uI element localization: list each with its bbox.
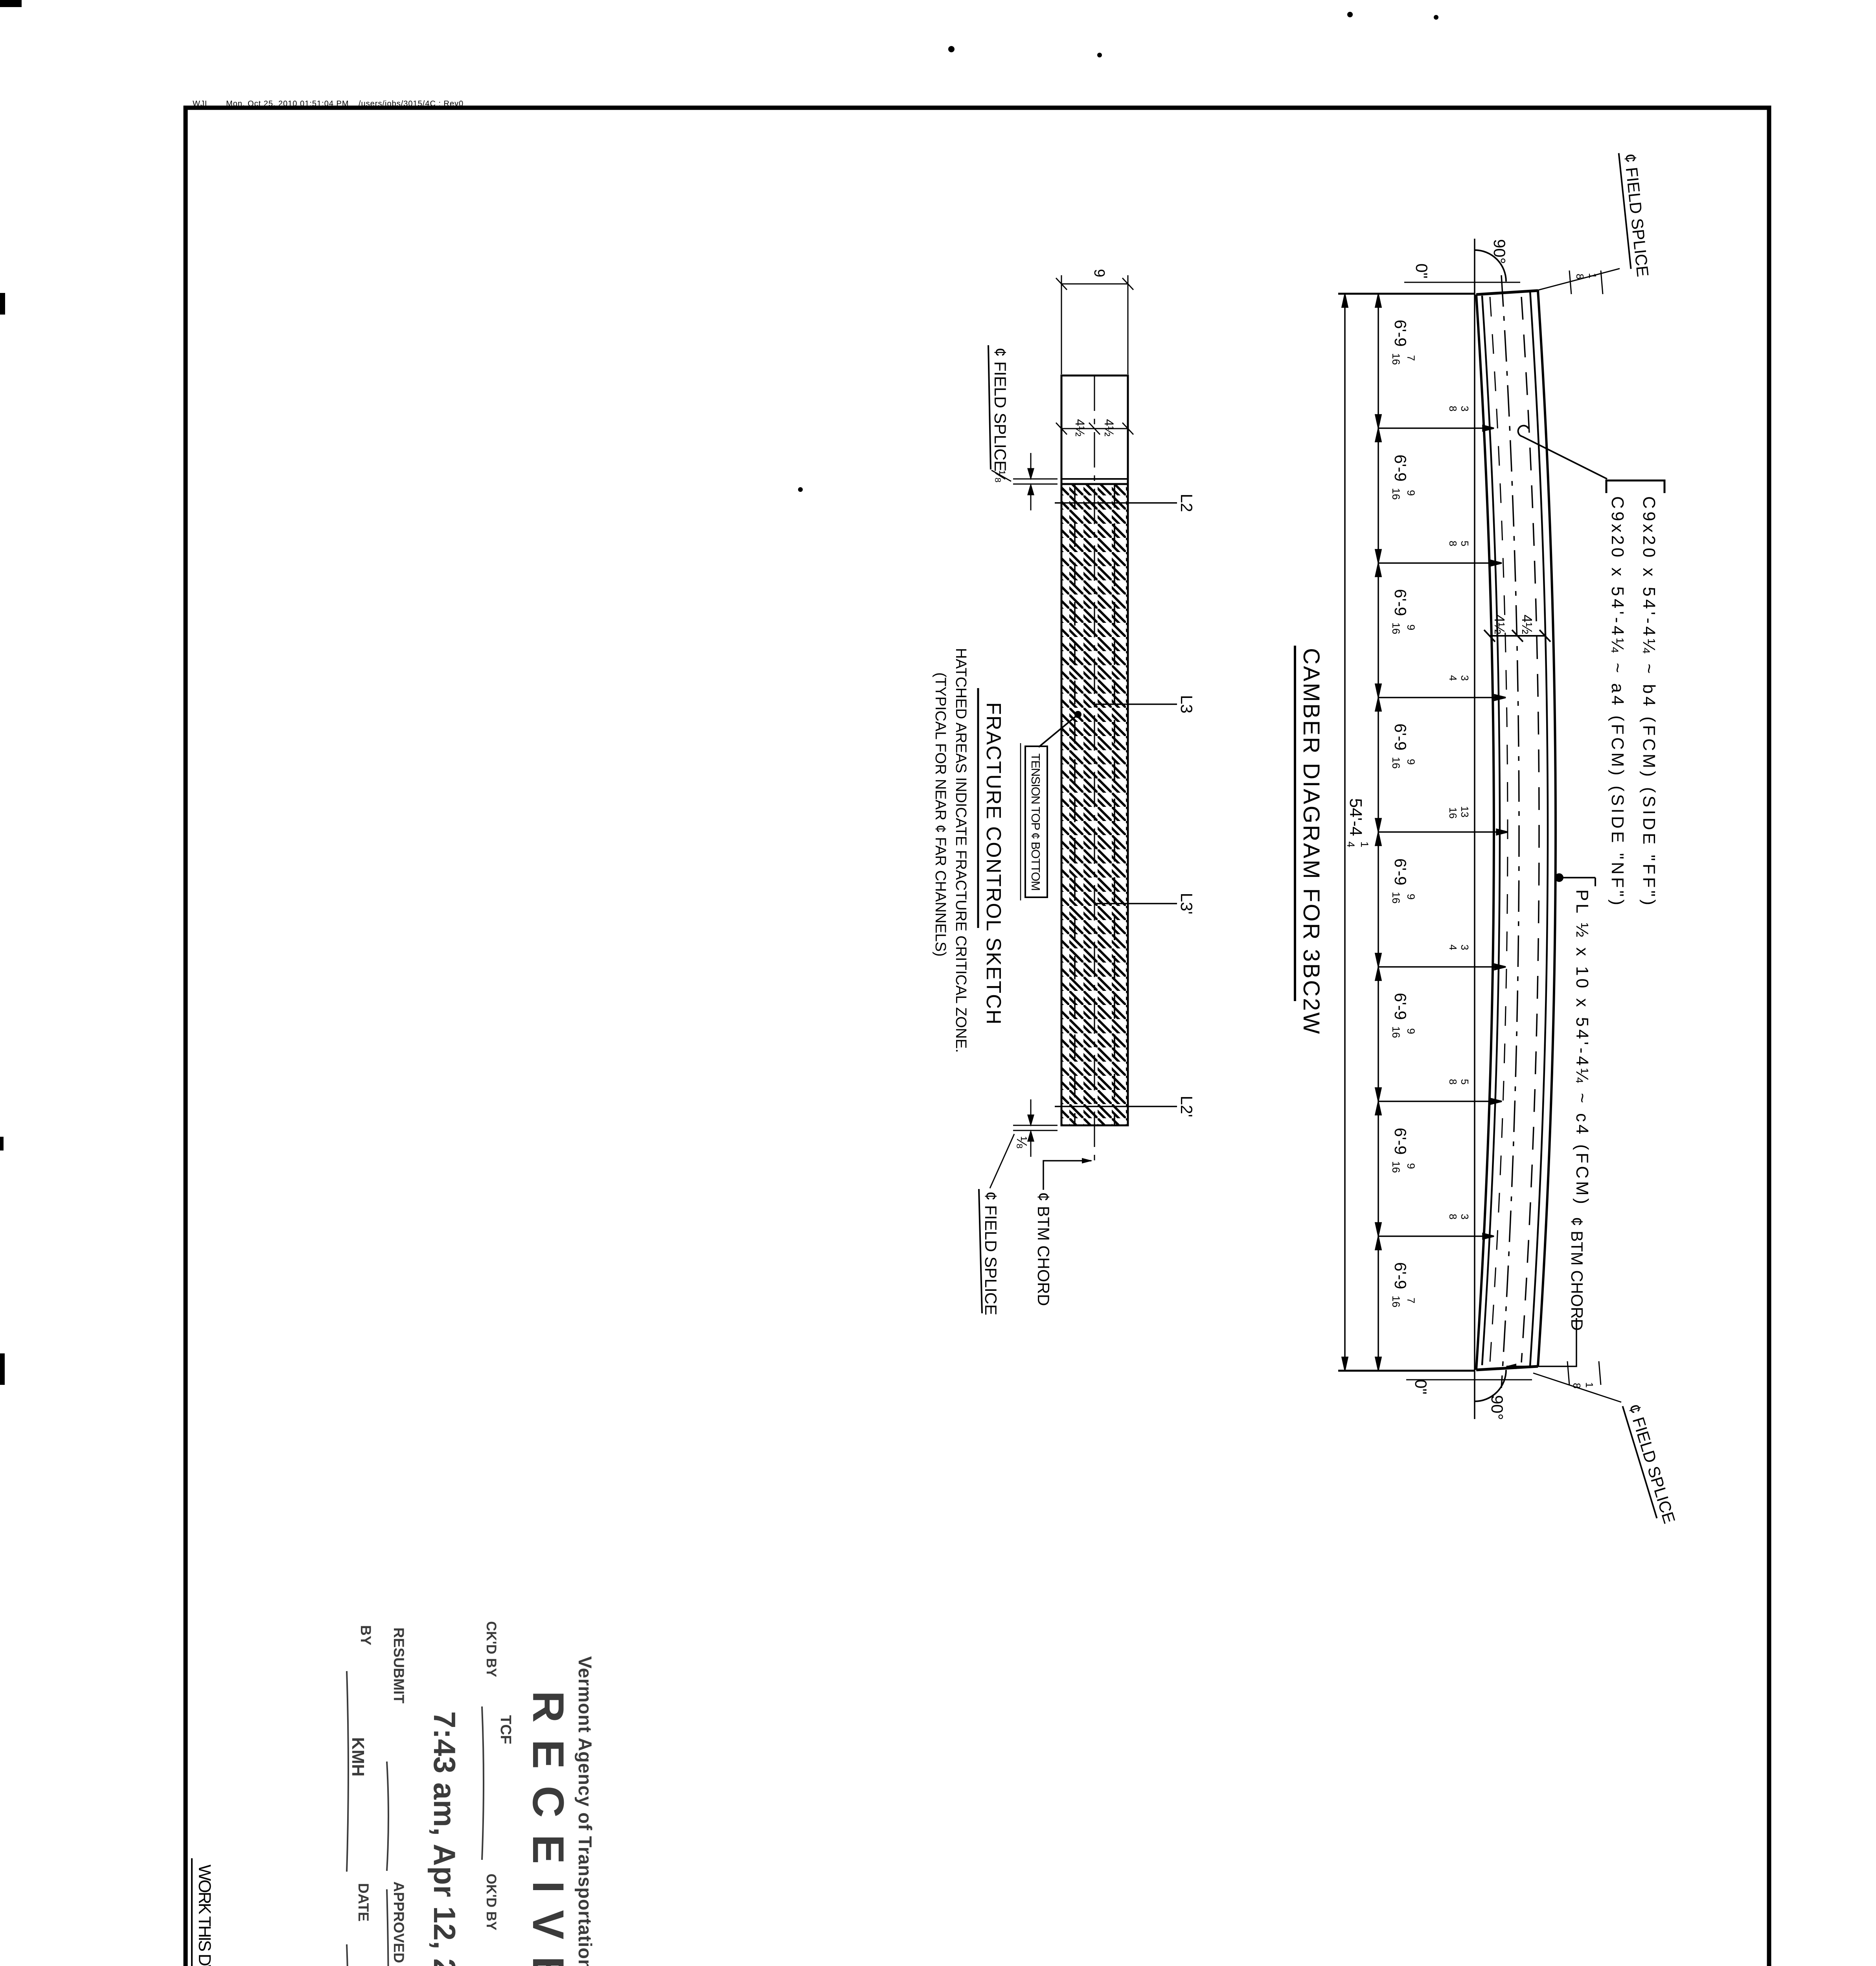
svg-text:1: 1 [1584, 1382, 1595, 1388]
svg-text:TCF: TCF [497, 1715, 514, 1744]
svg-text:90°: 90° [1490, 239, 1509, 264]
svg-text:4½: 4½ [1102, 419, 1116, 436]
svg-text:APPROVED: APPROVED [391, 1881, 407, 1963]
svg-text:¢ BTM CHORD: ¢ BTM CHORD [1034, 1192, 1053, 1306]
svg-text:1: 1 [1587, 273, 1598, 278]
svg-text:16: 16 [1390, 353, 1402, 365]
svg-text:0": 0" [1413, 263, 1431, 278]
svg-text:8: 8 [1447, 1079, 1459, 1084]
svg-text:16: 16 [1390, 1296, 1402, 1307]
svg-text:HATCHED AREAS INDICATE FRACTUR: HATCHED AREAS INDICATE FRACTURE CRITICAL… [953, 648, 969, 1053]
svg-text:9: 9 [1405, 1028, 1417, 1034]
svg-text:3: 3 [1459, 406, 1471, 411]
svg-text:(TYPICAL FOR NEAR ¢ FAR CHANNE: (TYPICAL FOR NEAR ¢ FAR CHANNELS) [932, 672, 949, 957]
svg-text:6'-9: 6'-9 [1391, 1262, 1410, 1289]
svg-text:7:43 am, Apr 12, 2011: 7:43 am, Apr 12, 2011 [427, 1711, 462, 1966]
svg-text:9: 9 [1405, 759, 1417, 765]
svg-text:16: 16 [1390, 757, 1402, 769]
svg-text:6'-9: 6'-9 [1391, 993, 1410, 1020]
svg-text:6'-9: 6'-9 [1391, 858, 1410, 885]
svg-text:3: 3 [1459, 1214, 1471, 1219]
svg-text:C9x20 x 54'-4¼ ~ b4 (FCM) (SID: C9x20 x 54'-4¼ ~ b4 (FCM) (SIDE "FF") [1639, 496, 1659, 905]
svg-text:L3: L3 [1177, 695, 1196, 714]
svg-text:KMH: KMH [348, 1737, 368, 1776]
svg-text:⅛: ⅛ [1014, 1136, 1030, 1149]
svg-text:90°: 90° [1488, 1395, 1506, 1420]
svg-text:16: 16 [1390, 1026, 1402, 1038]
svg-text:L3': L3' [1177, 893, 1196, 915]
svg-text:L2': L2' [1177, 1096, 1196, 1117]
svg-text:16: 16 [1390, 1161, 1402, 1173]
svg-text:8: 8 [1447, 541, 1459, 546]
svg-text:4½: 4½ [1519, 615, 1535, 634]
svg-text:16: 16 [1390, 488, 1402, 500]
svg-text:¢ FIELD SPLICE: ¢ FIELD SPLICE [982, 1191, 1000, 1315]
svg-text:9: 9 [1405, 490, 1417, 496]
svg-text:9: 9 [1405, 624, 1417, 630]
svg-text:¢ FIELD SPLICE: ¢ FIELD SPLICE [991, 348, 1010, 471]
svg-text:RESUBMIT: RESUBMIT [391, 1627, 407, 1704]
svg-text:6'-9: 6'-9 [1391, 320, 1410, 347]
svg-text:7: 7 [1405, 1298, 1417, 1303]
svg-text:4: 4 [1447, 944, 1459, 950]
svg-text:9: 9 [1405, 1163, 1417, 1169]
svg-text:TENSION TOP ¢ BOTTOM: TENSION TOP ¢ BOTTOM [1029, 753, 1043, 891]
svg-text:5: 5 [1459, 541, 1471, 546]
svg-text:FRACTURE CONTROL SKETCH: FRACTURE CONTROL SKETCH [982, 702, 1005, 1025]
svg-text:16: 16 [1447, 807, 1459, 819]
svg-text:¢ FIELD SPLICE: ¢ FIELD SPLICE [1625, 1402, 1679, 1526]
svg-text:6'-9: 6'-9 [1391, 723, 1410, 751]
svg-text:6'-9: 6'-9 [1391, 589, 1410, 616]
svg-text:CAMBER DIAGRAM FOR 3BC2W: CAMBER DIAGRAM FOR 3BC2W [1298, 648, 1324, 1035]
svg-text:4: 4 [1345, 841, 1357, 847]
svg-text:WORK THIS DWG. WITH DWG. 4AC ¢: WORK THIS DWG. WITH DWG. 4AC ¢ 4BC. [195, 1865, 214, 1966]
svg-text:1: 1 [1359, 841, 1370, 847]
svg-text:7: 7 [1405, 355, 1417, 361]
svg-text:3: 3 [1459, 675, 1471, 681]
svg-text:CK'D BY: CK'D BY [484, 1621, 499, 1677]
svg-text:16: 16 [1390, 892, 1402, 904]
svg-text:OK'D BY: OK'D BY [484, 1874, 499, 1930]
svg-text:16: 16 [1390, 622, 1402, 634]
svg-text:4: 4 [1447, 675, 1459, 681]
svg-text:¢ BTM CHORD: ¢ BTM CHORD [1568, 1217, 1586, 1331]
svg-text:6'-9: 6'-9 [1391, 455, 1410, 482]
svg-text:54'-4: 54'-4 [1346, 798, 1365, 836]
svg-text:PL ½ x 10 x 54'-4¼ ~ c4 (FCM): PL ½ x 10 x 54'-4¼ ~ c4 (FCM) [1573, 889, 1592, 1204]
svg-text:8: 8 [1447, 406, 1459, 411]
svg-text:8: 8 [1447, 1214, 1459, 1219]
svg-text:13: 13 [1459, 806, 1471, 817]
svg-text:C9x20 x 54'-4¼ ~ a4 (FCM) (SID: C9x20 x 54'-4¼ ~ a4 (FCM) (SIDE "NF") [1608, 496, 1627, 905]
svg-text:L2: L2 [1177, 494, 1196, 512]
svg-text:DATE: DATE [355, 1883, 372, 1922]
svg-text:4½: 4½ [1492, 615, 1508, 634]
svg-text:Vermont Agency of Transportati: Vermont Agency of Transportation [575, 1656, 596, 1966]
svg-text:6'-9: 6'-9 [1391, 1128, 1410, 1155]
svg-text:9: 9 [1405, 894, 1417, 900]
svg-text:BY: BY [358, 1625, 374, 1646]
svg-text:8: 8 [1571, 1383, 1583, 1388]
svg-text:9: 9 [1091, 269, 1107, 277]
svg-text:4½: 4½ [1073, 419, 1087, 436]
svg-text:5: 5 [1459, 1079, 1471, 1084]
svg-text:8: 8 [1574, 274, 1586, 279]
svg-text:RECEIVED: RECEIVED [524, 1691, 573, 1966]
svg-text:3: 3 [1459, 944, 1471, 950]
svg-text:0": 0" [1412, 1379, 1430, 1394]
